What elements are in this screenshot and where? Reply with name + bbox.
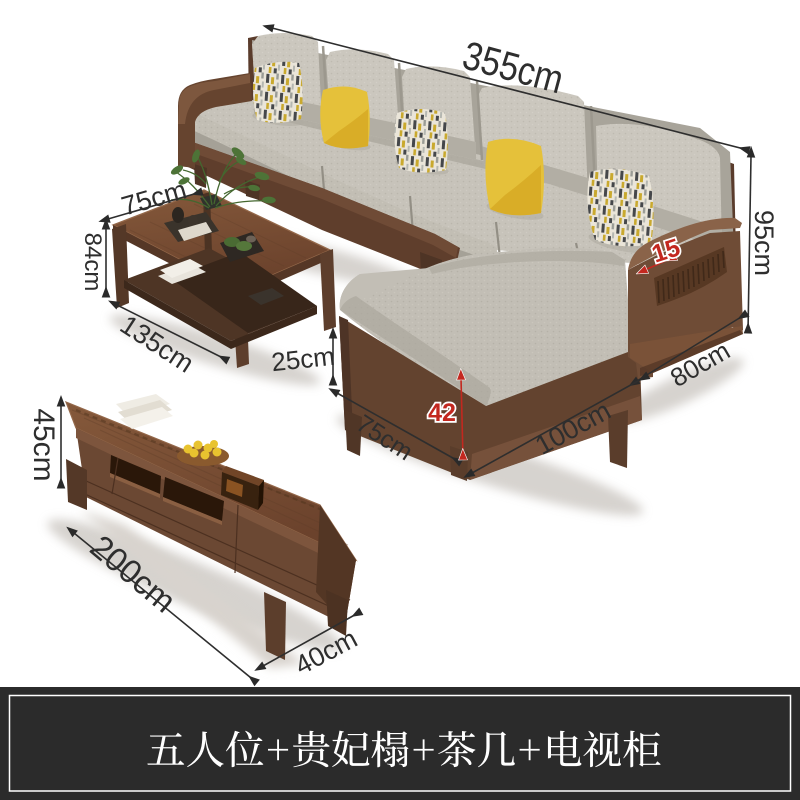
svg-text:45cm: 45cm <box>27 408 60 481</box>
svg-text:95cm: 95cm <box>749 210 779 276</box>
svg-text:42: 42 <box>428 399 456 427</box>
svg-text:84cm: 84cm <box>79 233 106 292</box>
